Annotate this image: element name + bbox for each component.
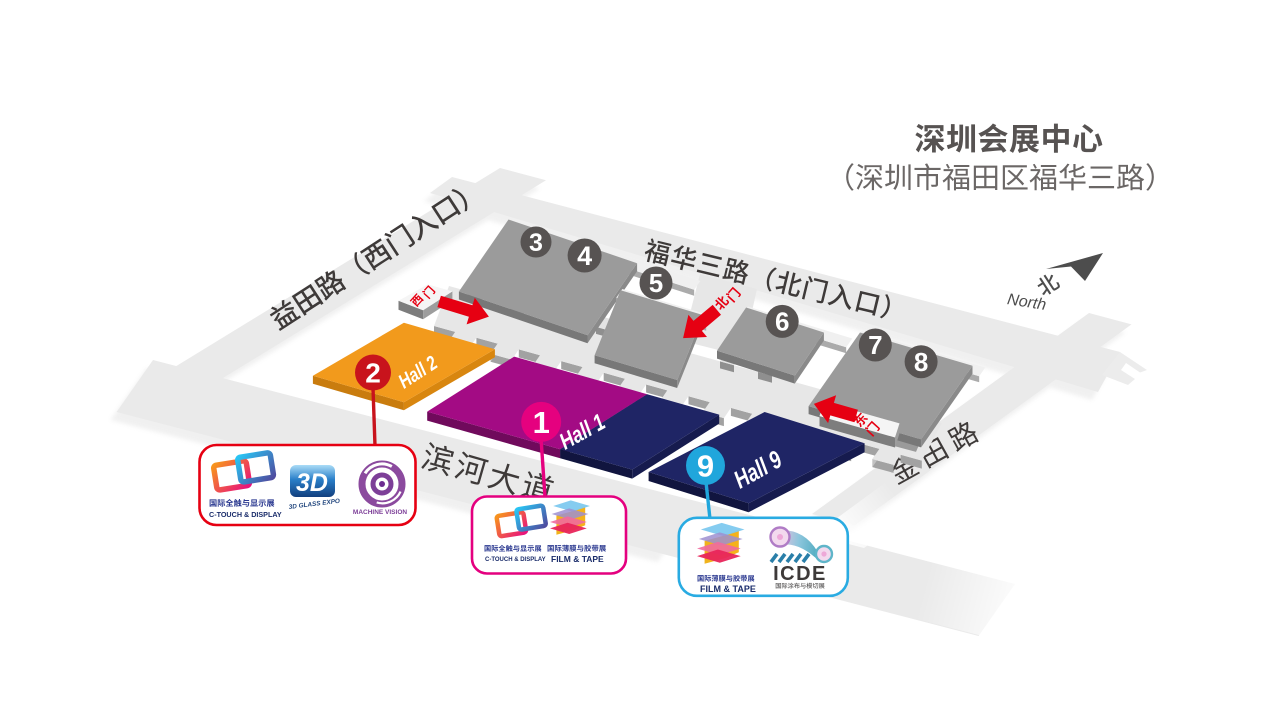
svg-text:2: 2 <box>365 357 381 388</box>
svg-text:3D: 3D <box>296 469 328 497</box>
svg-text:6: 6 <box>775 307 789 337</box>
svg-text:1: 1 <box>533 405 550 440</box>
svg-text:8: 8 <box>914 347 928 377</box>
svg-text:5: 5 <box>649 268 663 298</box>
svg-text:FILM & TAPE: FILM & TAPE <box>700 584 756 594</box>
svg-text:7: 7 <box>868 330 882 360</box>
svg-text:9: 9 <box>697 449 714 484</box>
svg-text:C-TOUCH & DISPLAY: C-TOUCH & DISPLAY <box>485 557 546 563</box>
svg-text:4: 4 <box>577 241 592 271</box>
svg-text:FILM & TAPE: FILM & TAPE <box>551 554 604 564</box>
svg-text:C-TOUCH & DISPLAY: C-TOUCH & DISPLAY <box>209 510 282 519</box>
svg-text:MACHINE VISION: MACHINE VISION <box>353 509 407 516</box>
svg-text:ICDE: ICDE <box>773 563 827 585</box>
svg-text:3: 3 <box>529 229 543 257</box>
